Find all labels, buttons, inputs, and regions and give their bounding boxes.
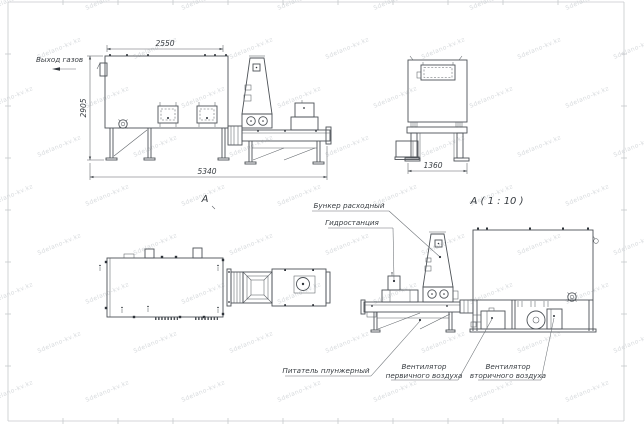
dim-2550: 2550 [107, 39, 223, 52]
frame-ticks [5, 0, 627, 424]
dim-1360: 1360 [408, 161, 467, 174]
dim-1360-text: 1360 [423, 161, 442, 170]
front-opening [417, 62, 455, 80]
hydraulic-label: Гидростанция [325, 218, 379, 227]
technical-drawing: 2550 2905 5340 Выход газов А [0, 0, 644, 430]
feeder-conveyor-main [228, 126, 331, 164]
hatch-1 [158, 102, 178, 127]
fan-secondary-label-line1: Вентилятор [486, 362, 531, 371]
sheet-frame [5, 0, 627, 424]
detail-furnace-body [473, 228, 598, 308]
pedestal-main [291, 100, 318, 130]
dim-2550-text: 2550 [155, 39, 174, 48]
dim-2905-text: 2905 [79, 98, 88, 117]
dim-5340: 5340 [90, 146, 327, 180]
furnace-body [105, 54, 228, 128]
callout-hydraulic: Гидростанция [325, 218, 395, 282]
hydraulic-station [382, 272, 418, 302]
plan-position-marks [99, 265, 219, 313]
hatch-2 [197, 102, 217, 127]
dim-5340-text: 5340 [197, 167, 216, 176]
detail-underframe [470, 300, 596, 332]
detail-hopper [423, 232, 458, 302]
front-side-box [395, 141, 419, 160]
fan-primary-label-line2: первичного воздуха [386, 371, 463, 380]
view-label-a: А [201, 194, 209, 205]
view-front: 1360 А ( 1 : 10 ) [395, 56, 524, 207]
callout-gas-outlet: Выход газов [36, 55, 83, 71]
hopper-main [242, 56, 272, 128]
drawing-sheet: Sdelano-kv.kzSdelano-kv.kzSdelano-kv.kzS… [0, 0, 644, 430]
flange-port [119, 120, 128, 129]
furnace-support-frame [106, 128, 229, 160]
view-side-main: 2550 2905 5340 Выход газов А [36, 39, 331, 209]
callout-feeder: Питатель плунжерный [282, 319, 421, 376]
front-legs [405, 122, 469, 161]
gas-outlet-label: Выход газов [36, 55, 83, 64]
gas-outlet-arrow-icon [52, 67, 60, 71]
detail-feeder [361, 300, 473, 332]
view-label-a-1-10: А ( 1 : 10 ) [470, 196, 524, 207]
fan-primary-label-line1: Вентилятор [402, 362, 447, 371]
fan-secondary [527, 309, 562, 329]
callout-hopper: Бункер расходный [312, 201, 441, 258]
fan-secondary-label-line2: вторичного воздуха [470, 371, 546, 380]
feeder-label: Питатель плунжерный [282, 366, 369, 375]
view-plan [99, 248, 330, 319]
hopper-label: Бункер расходный [313, 201, 384, 210]
front-body [408, 56, 467, 122]
gas-outlet-stub [97, 63, 107, 76]
plan-furnace [99, 248, 224, 319]
plan-feeder [227, 269, 330, 306]
